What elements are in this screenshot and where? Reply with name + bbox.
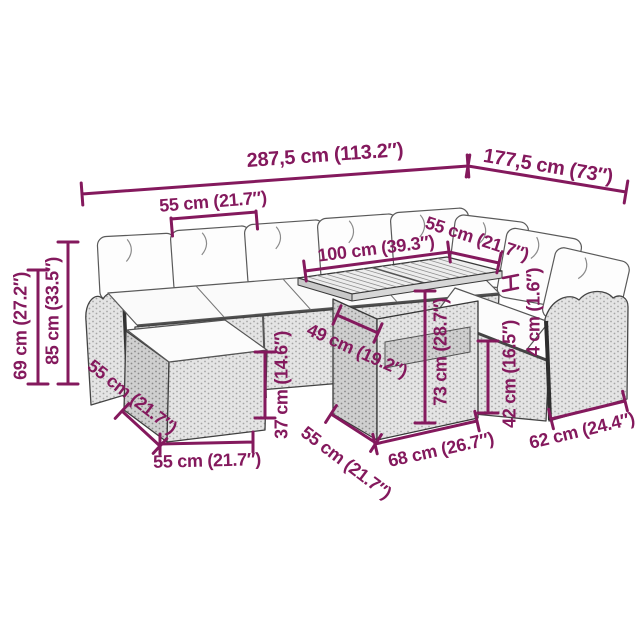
right-armrest	[545, 291, 628, 421]
dim-footstool-width: 55 cm (21.7″)	[153, 449, 261, 473]
dim-total-height: 85 cm (33.5″)	[43, 257, 64, 365]
dim-cushion-thickness: 4 cm (1.6″)	[524, 268, 545, 356]
dim-seat-height: 42 cm (16.5″)	[500, 320, 521, 428]
dim-backrest-height: 69 cm (27.2″)	[11, 272, 32, 380]
dim-footstool-height: 37 cm (14.6″)	[272, 331, 293, 439]
product-dimension-diagram: 287,5 cm (113.2″) 177,5 cm (73″) 55 cm (…	[0, 0, 640, 640]
dim-table-height: 73 cm (28.7″)	[431, 298, 452, 406]
footstool	[124, 320, 267, 442]
